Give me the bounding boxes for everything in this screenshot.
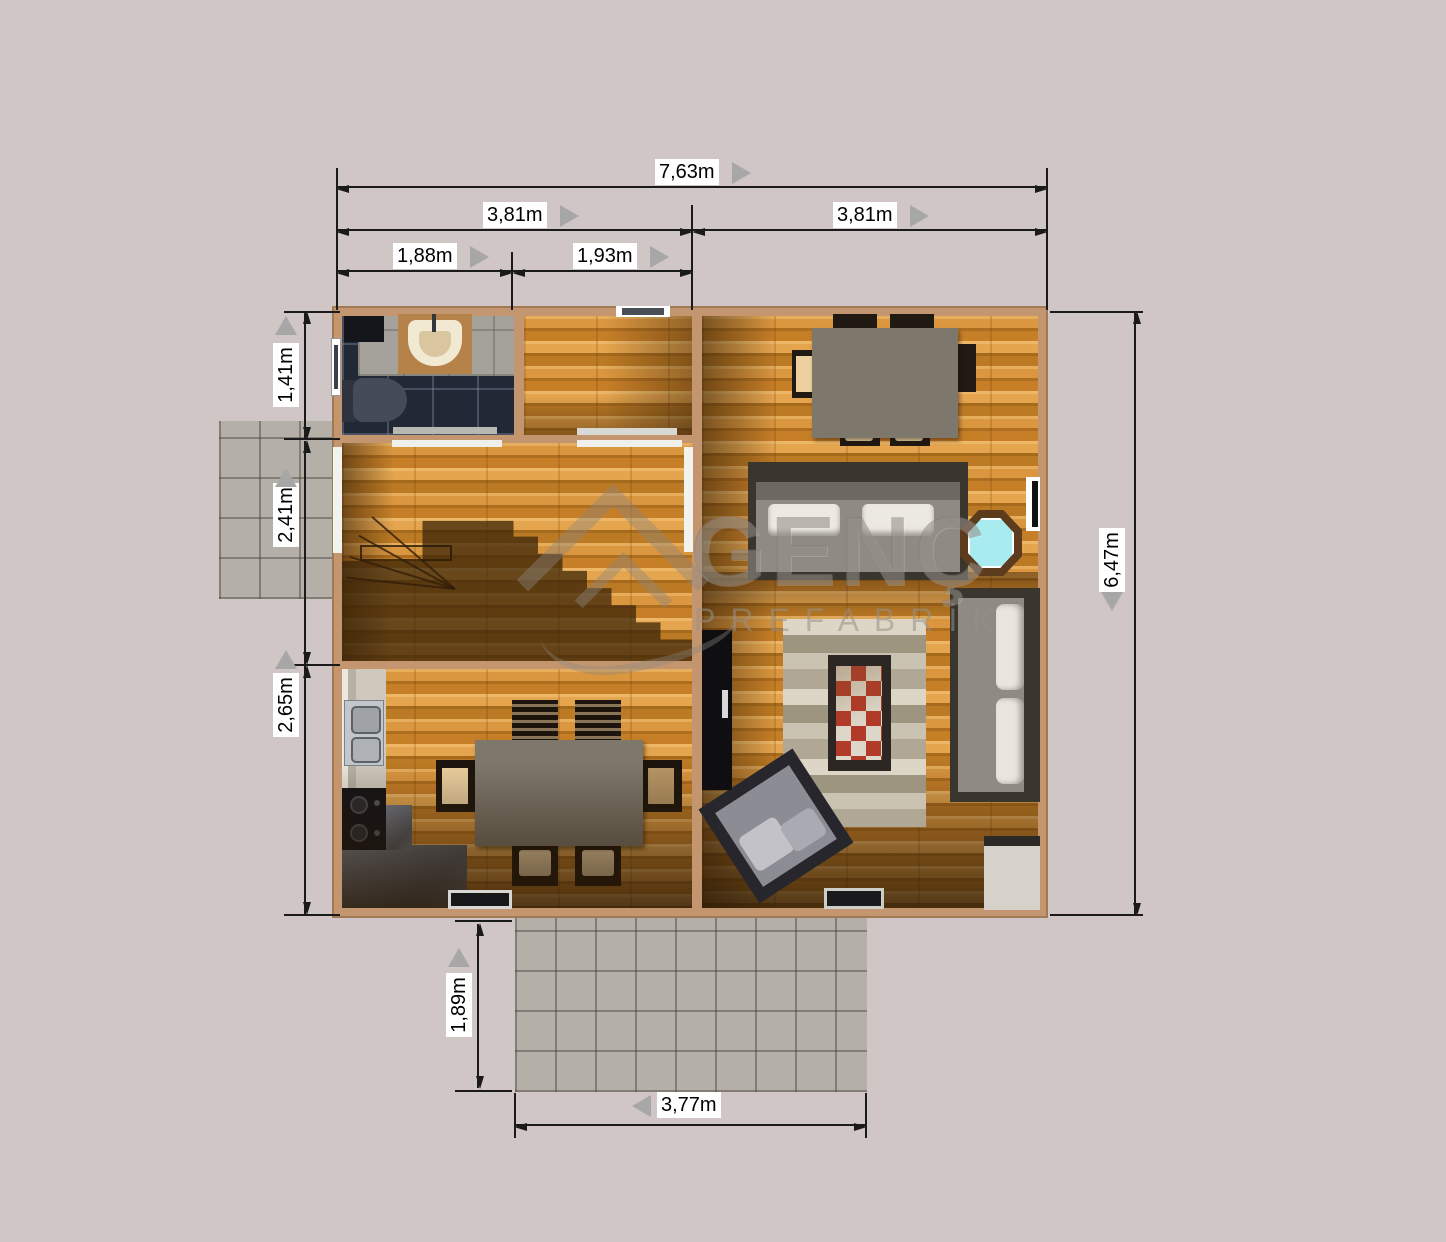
sink-basin (351, 706, 381, 734)
witness-line (455, 920, 512, 922)
arrowhead (303, 665, 311, 678)
dim-line-bathroom-depth (304, 312, 306, 439)
witness-line (1050, 311, 1143, 313)
stove-knob (374, 830, 380, 836)
patio-bottom (515, 917, 867, 1092)
pointer-triangle (560, 205, 579, 227)
dim-line-porch-width (515, 1124, 866, 1126)
tv-stand (702, 630, 732, 790)
dim-label-left-half: 3,81m (483, 202, 547, 228)
kitchen-doormat (448, 890, 512, 909)
dim-label-right-half: 3,81m (833, 202, 897, 228)
stove-knob (374, 800, 380, 806)
arrowhead (1035, 185, 1048, 193)
dim-label-small-room-width: 1,93m (573, 243, 637, 269)
dim-label-total-width: 7,63m (655, 159, 719, 185)
kitchen-chair (640, 760, 682, 812)
bathroom-window (331, 338, 341, 396)
chair-seat (519, 850, 551, 876)
witness-line (511, 252, 513, 310)
faucet-icon (432, 314, 436, 332)
sofa-backrest (756, 482, 960, 500)
room-small-bedroom (524, 316, 692, 435)
pointer-triangle (275, 316, 297, 335)
coffee-table (828, 655, 891, 771)
floorplan-canvas: GENÇ PREFABRİK 7,63m (0, 0, 1446, 1242)
arrowhead (514, 1123, 527, 1131)
witness-line (514, 1093, 516, 1138)
hall-door-left (333, 447, 342, 553)
arrowhead (336, 185, 349, 193)
sofa-right (950, 588, 1040, 802)
arrowhead (303, 311, 311, 324)
dim-label-total-depth: 6,47m (1099, 528, 1125, 592)
kitchen-chair (512, 846, 558, 886)
pointer-triangle (1101, 592, 1123, 611)
dim-line-total-width (337, 186, 1047, 188)
living-table (812, 328, 958, 438)
pointer-triangle (275, 468, 297, 487)
burner (350, 796, 368, 814)
dim-line-porch-depth (477, 924, 479, 1088)
arrowhead (1133, 311, 1141, 324)
bathroom-cabinet (344, 316, 384, 342)
arrowhead (854, 1123, 867, 1131)
arrowhead (1133, 903, 1141, 916)
dim-label-kitchen-depth: 2,65m (273, 673, 299, 737)
sofa-cushion (996, 604, 1024, 690)
arrowhead (512, 269, 525, 277)
arrowhead (680, 269, 693, 277)
living-doormat (824, 888, 884, 909)
window-glass (622, 308, 664, 315)
small-room-window (616, 306, 670, 317)
witness-line (865, 1093, 867, 1138)
arrowhead (303, 440, 311, 453)
kitchen-chair (436, 760, 478, 812)
pointer-triangle (632, 1095, 651, 1117)
hall-door-top-bathroom (392, 440, 502, 447)
kitchen-table (475, 740, 643, 846)
bath-mat (393, 427, 497, 434)
dim-line-hallway-depth (304, 441, 306, 664)
arrowhead (476, 923, 484, 936)
kitchen-sink (344, 700, 384, 766)
living-window (1026, 477, 1040, 531)
arrowhead (336, 269, 349, 277)
chair-seat (582, 850, 614, 876)
witness-line (455, 1090, 512, 1092)
small-room-door-threshold (577, 428, 677, 435)
witness-line (691, 205, 693, 310)
arrowhead (1035, 228, 1048, 236)
witness-line (284, 311, 340, 313)
sofa-cushion (996, 698, 1024, 784)
dim-line-bathroom-width (337, 270, 512, 272)
window-glass (1032, 481, 1038, 527)
dim-label-hallway-depth: 2,41m (273, 483, 299, 547)
sofa-top (748, 462, 968, 580)
hall-door-living (684, 447, 693, 552)
hall-door-top-small-room (577, 440, 682, 447)
tv-screen-edge (722, 690, 728, 718)
dim-label-porch-depth: 1,89m (446, 973, 472, 1037)
pillow (768, 504, 840, 536)
cabinet (984, 836, 1040, 910)
pointer-triangle (910, 205, 929, 227)
witness-line (284, 914, 340, 916)
dim-label-bathroom-depth: 1,41m (273, 343, 299, 407)
witness-line (284, 438, 340, 440)
window-glass (334, 345, 338, 389)
arrowhead (303, 902, 311, 915)
dim-line-total-depth (1134, 312, 1136, 915)
dim-line-right-half (693, 229, 1047, 231)
stove (342, 788, 386, 850)
arrowhead (476, 1076, 484, 1089)
coffee-table-tint (836, 666, 882, 760)
chair-seat (648, 768, 674, 804)
chair-seat (796, 356, 812, 392)
arrowhead (692, 228, 705, 236)
cabinet-edge (984, 836, 1040, 846)
toilet (353, 378, 407, 422)
dim-label-porch-width: 3,77m (657, 1092, 721, 1118)
dim-label-bathroom-width: 1,88m (393, 243, 457, 269)
kitchen-chair (575, 846, 621, 886)
pointer-triangle (732, 162, 751, 184)
kitchen-chair (512, 700, 558, 744)
witness-line (1050, 914, 1143, 916)
pointer-triangle (470, 246, 489, 268)
pillow (862, 504, 934, 536)
side-table-top (968, 518, 1014, 568)
dim-line-kitchen-depth (304, 666, 306, 914)
arrowhead (336, 228, 349, 236)
dim-line-left-half (337, 229, 692, 231)
side-table (960, 510, 1022, 576)
kitchen-chair (575, 700, 621, 744)
burner (350, 824, 368, 842)
chair-seat (442, 768, 468, 804)
pointer-triangle (650, 246, 669, 268)
pointer-triangle (448, 948, 470, 967)
arrowhead (303, 652, 311, 665)
kitchen-stone-floor (384, 805, 412, 850)
dim-line-small-room-width (513, 270, 692, 272)
arrowhead (303, 427, 311, 440)
sink-drainboard (351, 737, 381, 763)
pointer-triangle (275, 650, 297, 669)
